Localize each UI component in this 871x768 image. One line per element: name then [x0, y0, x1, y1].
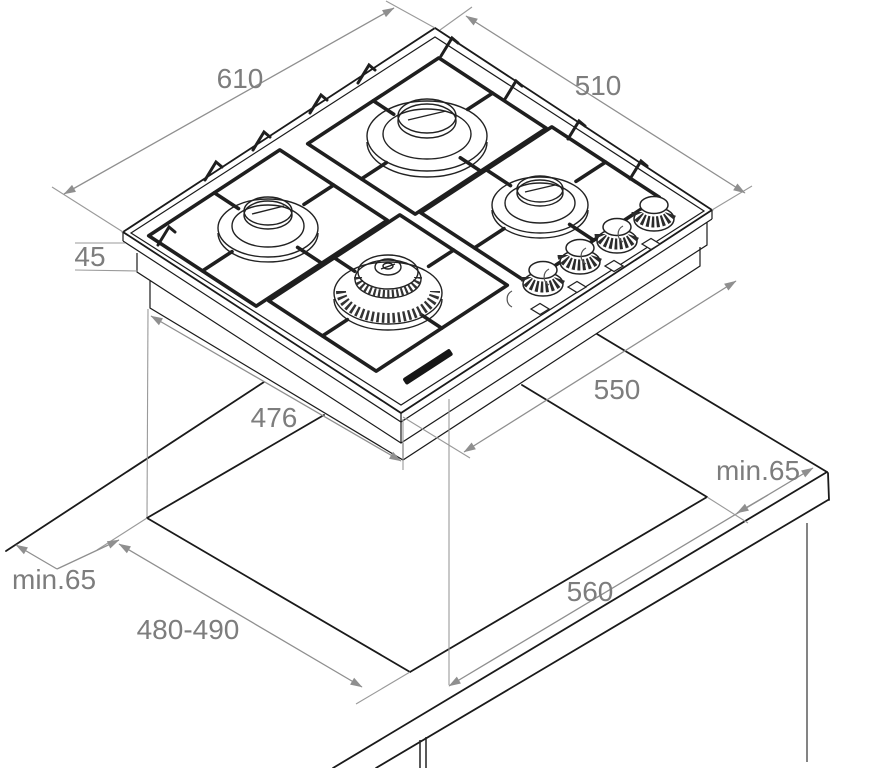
cutout-front-edge — [147, 518, 410, 672]
dim-label-hob-depth: 510 — [575, 70, 622, 101]
dim-label-cutout-width: 560 — [567, 576, 614, 607]
dimension-cutout-depth: 480-490 — [119, 544, 410, 704]
dim-label-clearance-right: min.65 — [716, 455, 800, 486]
wok-drum-ribs — [358, 277, 418, 294]
control-knob-1 — [523, 262, 563, 297]
construction-line-left — [147, 309, 148, 517]
dimension-hob-depth: 510 — [440, 7, 752, 210]
brand-logo — [402, 348, 453, 385]
control-knobs — [507, 197, 674, 315]
control-knob-2 — [560, 240, 600, 275]
dimension-clearance-left: min.65 — [12, 518, 147, 595]
diagram-canvas: 610 510 45 476 550 — [0, 0, 871, 768]
control-knob-3 — [597, 219, 637, 254]
pan-support-frame-right — [421, 127, 660, 283]
dim-label-base-depth: 550 — [594, 374, 641, 405]
dimension-clearance-right: min.65 — [707, 455, 800, 523]
cabinet — [420, 523, 807, 768]
burner-cap-slot — [408, 111, 446, 120]
countertop-front-edge — [333, 472, 827, 768]
dim-label-base-width: 476 — [251, 402, 298, 433]
dim-label-clearance-left: min.65 — [12, 564, 96, 595]
dim-label-hob-height: 45 — [74, 241, 105, 272]
burner-cap-slot — [252, 206, 284, 214]
installation-diagram: 610 510 45 476 550 — [0, 0, 871, 768]
control-knob-4 — [634, 197, 674, 232]
cutout-left-edge — [147, 415, 324, 518]
dimension-base-depth: 550 — [403, 281, 736, 458]
dim-label-cutout-depth: 480-490 — [137, 614, 240, 645]
countertop-bottom-edge — [376, 500, 828, 768]
countertop-corner-edge — [828, 473, 829, 500]
dim-label-hob-width: 610 — [217, 63, 264, 94]
burner-cap-slot — [525, 185, 555, 192]
cutout-right-edge — [410, 497, 707, 672]
dimension-hob-height: 45 — [74, 241, 138, 272]
countertop — [6, 334, 829, 768]
